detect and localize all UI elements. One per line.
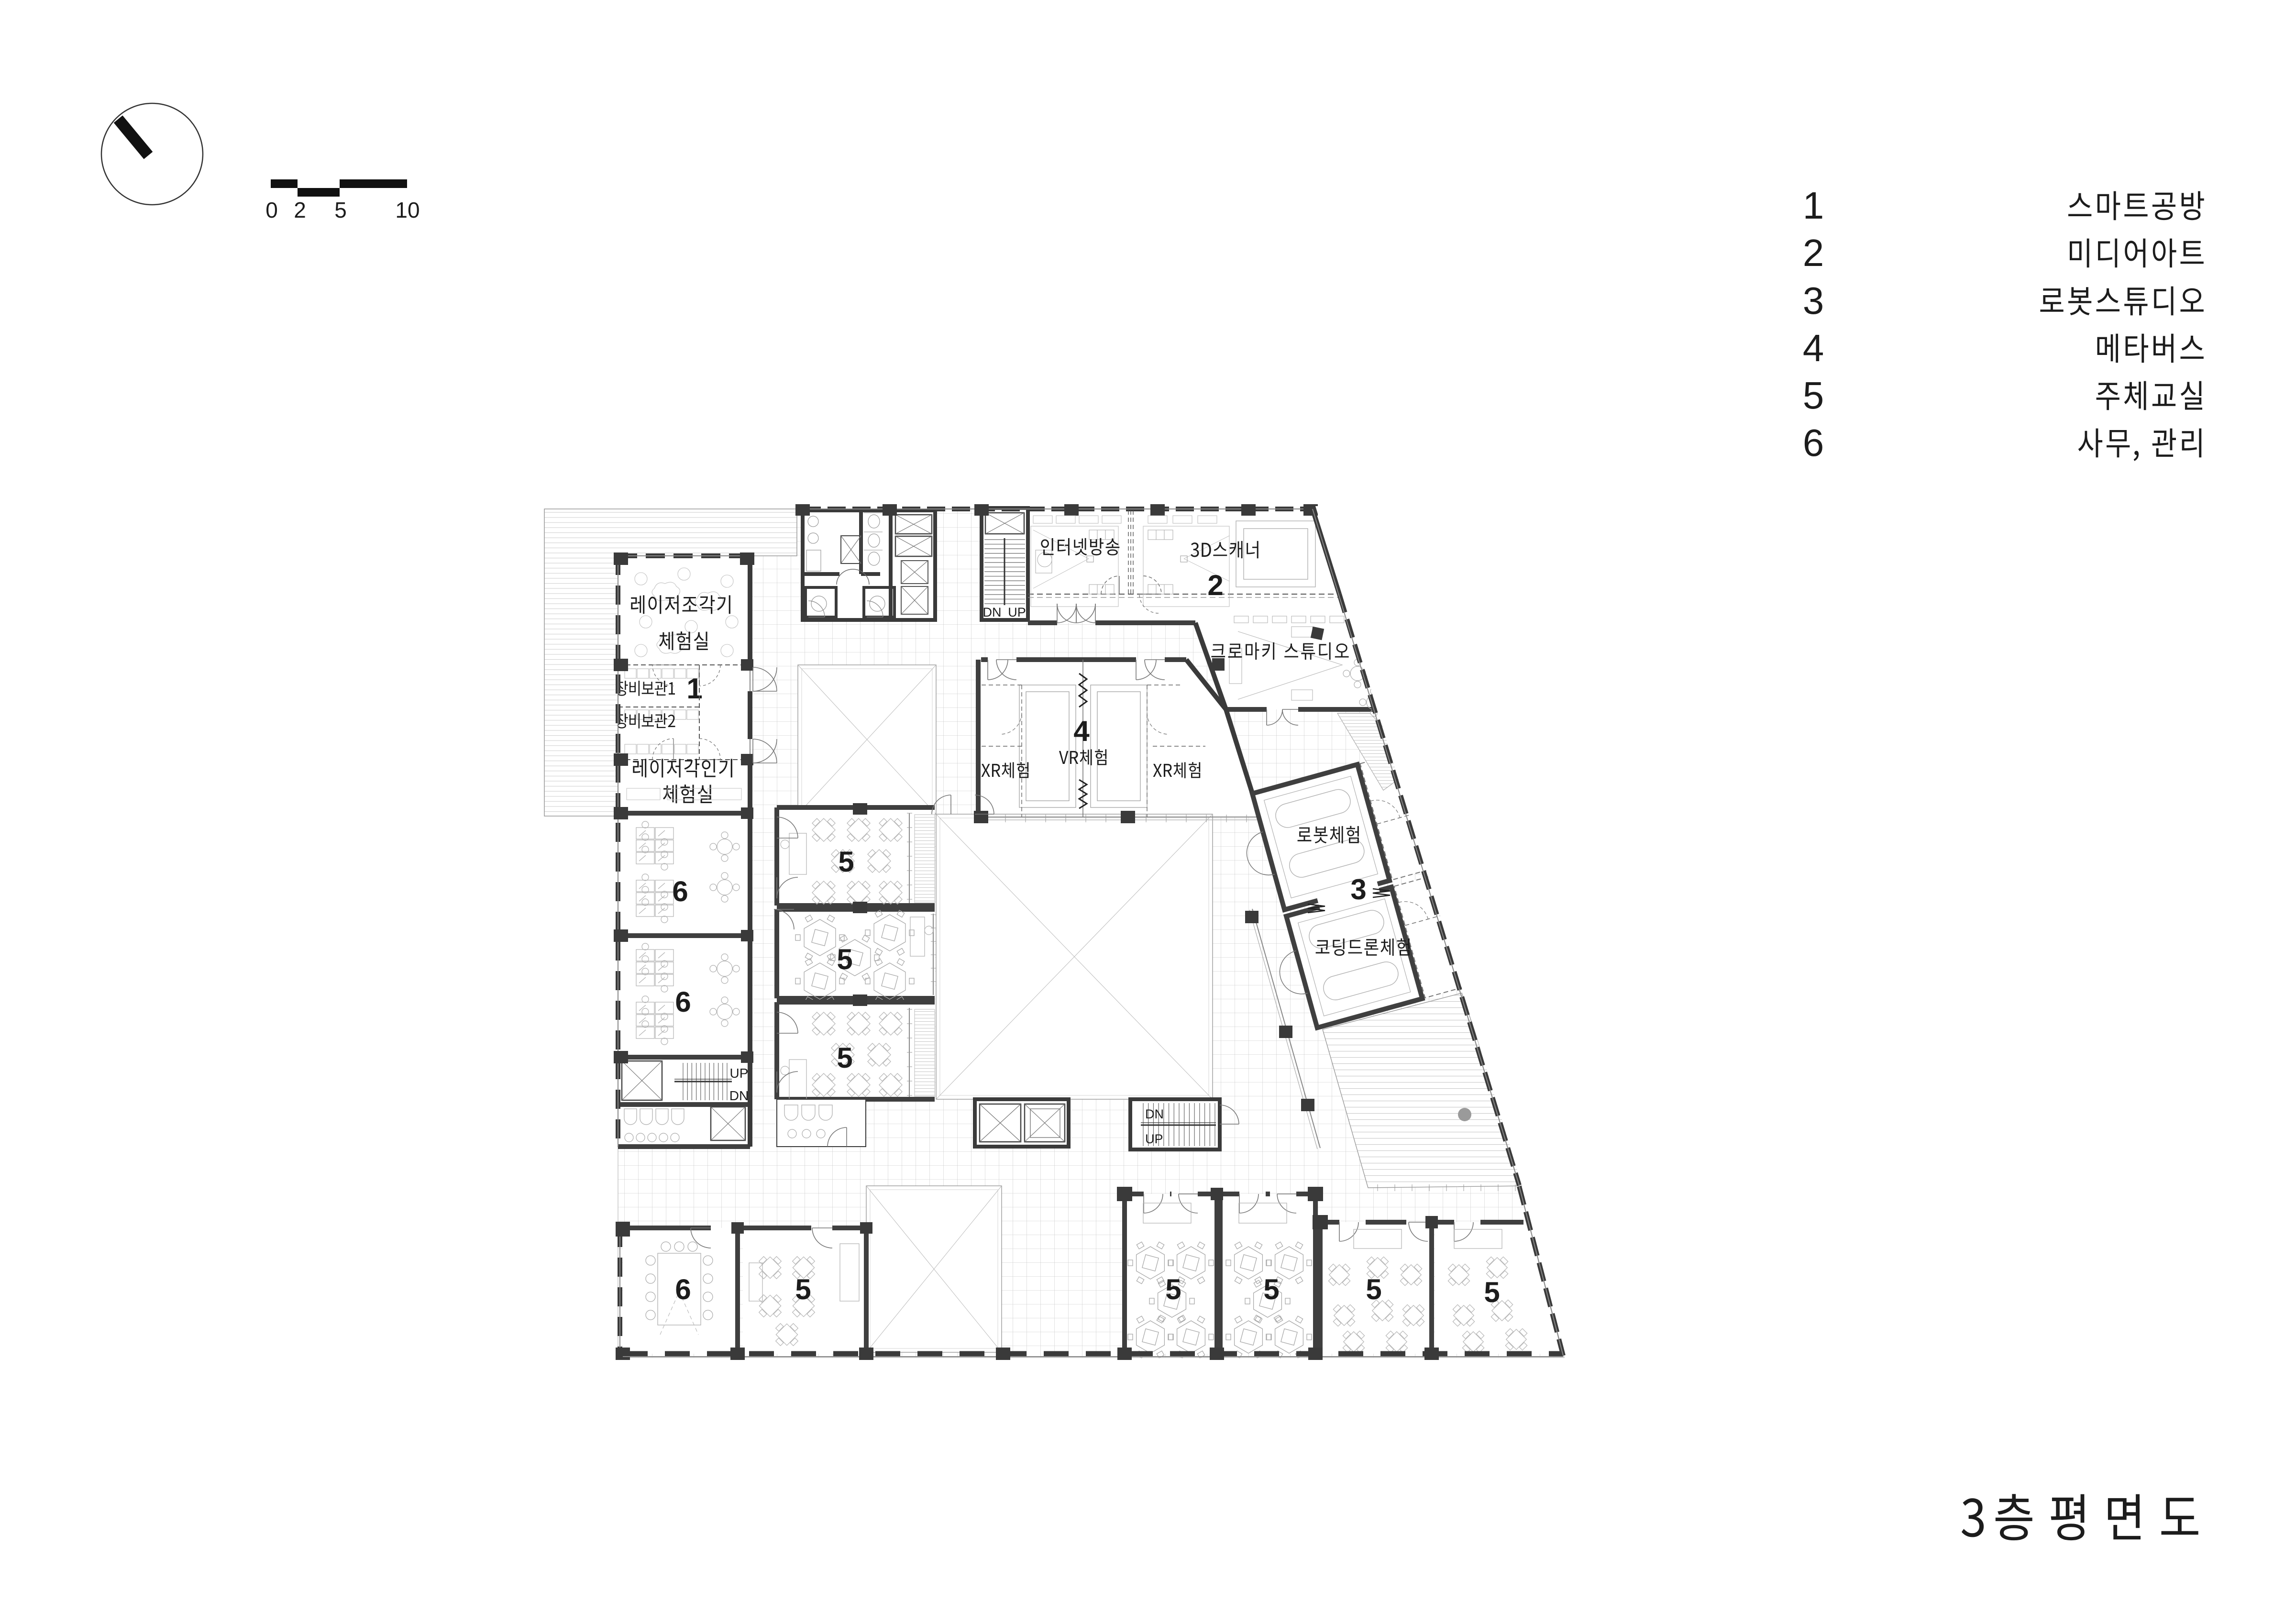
svg-text:5: 5 (795, 1273, 811, 1305)
svg-text:UP: UP (1145, 1132, 1163, 1146)
svg-text:6: 6 (675, 986, 691, 1018)
svg-text:6: 6 (672, 875, 688, 907)
svg-text:5: 5 (1484, 1276, 1500, 1308)
svg-text:DN: DN (1145, 1107, 1164, 1121)
svg-text:2: 2 (1803, 232, 1824, 274)
svg-text:UP: UP (730, 1066, 749, 1081)
svg-text:5: 5 (837, 1042, 852, 1074)
svg-text:0: 0 (265, 198, 278, 222)
svg-text:UP: UP (1008, 605, 1026, 619)
svg-text:1: 1 (1803, 184, 1824, 227)
svg-text:5: 5 (1366, 1273, 1381, 1305)
svg-text:3: 3 (1350, 873, 1366, 906)
svg-text:5: 5 (837, 943, 852, 975)
svg-text:6: 6 (675, 1273, 691, 1305)
svg-text:3: 3 (1803, 279, 1824, 322)
svg-text:1: 1 (686, 673, 702, 705)
svg-text:6: 6 (1803, 421, 1824, 464)
svg-text:5: 5 (1165, 1273, 1181, 1305)
svg-text:5: 5 (838, 846, 854, 878)
svg-text:DN: DN (983, 605, 1002, 619)
svg-text:2: 2 (1207, 569, 1223, 601)
svg-text:5: 5 (334, 198, 347, 222)
svg-text:5: 5 (1803, 374, 1824, 417)
svg-text:2: 2 (294, 198, 306, 222)
svg-text:4: 4 (1073, 715, 1090, 747)
svg-text:10: 10 (395, 198, 419, 222)
svg-text:5: 5 (1263, 1273, 1279, 1305)
svg-text:DN: DN (729, 1088, 749, 1103)
svg-text:4: 4 (1803, 327, 1824, 369)
